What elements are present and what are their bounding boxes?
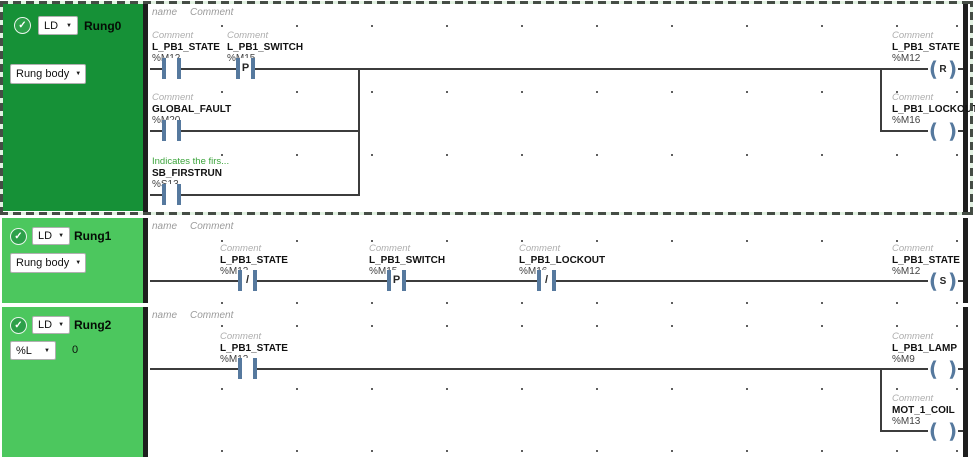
rung1-panel[interactable]: ✓ LD ▼ Rung1 Rung body ▼ bbox=[2, 218, 143, 303]
coil-set[interactable]: ( S ) bbox=[928, 269, 958, 293]
rung0-valid-check-icon: ✓ bbox=[14, 17, 31, 34]
grid-dots-row bbox=[221, 450, 899, 452]
rung-comment-field[interactable]: Comment bbox=[190, 310, 233, 321]
contact-modifier bbox=[166, 184, 177, 205]
element-name: SB_FIRSTRUN bbox=[152, 168, 282, 180]
rung2-language-label: LD bbox=[38, 319, 52, 331]
selection-border-right bbox=[970, 1, 973, 215]
rung0-title[interactable]: Rung0 bbox=[84, 19, 121, 33]
rung1-body-label: Rung body bbox=[16, 257, 69, 269]
grid-dots-row bbox=[221, 388, 899, 390]
rung0-language-label: LD bbox=[44, 20, 58, 32]
rung1-language-label: LD bbox=[38, 230, 52, 242]
rung2-label-dropdown[interactable]: %L ▼ bbox=[10, 341, 56, 360]
rung2-panel[interactable]: ✓ LD ▼ Rung2 %L ▼ 0 bbox=[2, 307, 143, 457]
coil-paren-close: ) bbox=[948, 358, 957, 380]
element-name: L_PB1_STATE bbox=[220, 255, 350, 267]
rung2-language-dropdown[interactable]: LD ▼ bbox=[32, 316, 70, 334]
rung0-panel[interactable]: ✓ LD ▼ Rung0 Rung body ▼ bbox=[2, 4, 143, 211]
rung2-name-comment-header[interactable]: name Comment bbox=[152, 310, 233, 321]
wire-segment bbox=[150, 68, 963, 70]
element-comment: Comment bbox=[519, 243, 649, 255]
contact-bar bbox=[177, 58, 181, 79]
coil-paren-open: ( bbox=[929, 120, 938, 142]
wire-segment bbox=[150, 368, 963, 370]
element-comment: Comment bbox=[892, 393, 975, 405]
rung1-body-dropdown[interactable]: Rung body ▼ bbox=[10, 253, 86, 273]
contact-bar bbox=[552, 270, 556, 291]
element-name: L_PB1_LAMP bbox=[892, 343, 975, 355]
wire-segment bbox=[150, 194, 359, 196]
contact-modifier: P bbox=[240, 58, 251, 79]
branch-wire bbox=[880, 368, 882, 432]
contact-bar bbox=[253, 270, 257, 291]
rung0-name-comment-header[interactable]: name Comment bbox=[152, 7, 233, 18]
contact-bar bbox=[253, 358, 257, 379]
element-name: L_PB1_STATE bbox=[892, 42, 975, 54]
branch-wire bbox=[880, 68, 882, 132]
wire-segment bbox=[150, 280, 963, 282]
grid-dots-row bbox=[221, 91, 899, 93]
contact-modifier bbox=[166, 120, 177, 141]
contact-bar bbox=[177, 120, 181, 141]
element-comment: Comment bbox=[220, 243, 350, 255]
coil-paren-close: ) bbox=[948, 420, 957, 442]
wire-segment bbox=[150, 130, 359, 132]
contact-modifier: P bbox=[391, 270, 402, 291]
branch-wire bbox=[358, 68, 360, 196]
chevron-down-icon: ▼ bbox=[66, 23, 72, 29]
element-comment: Comment bbox=[369, 243, 499, 255]
contact-modifier: / bbox=[541, 270, 552, 291]
chevron-down-icon: ▼ bbox=[44, 348, 50, 354]
rung2-label-prefix: %L bbox=[16, 345, 32, 357]
element-comment: Comment bbox=[892, 30, 975, 42]
contact-rising-edge[interactable]: P bbox=[387, 270, 406, 291]
contact-modifier bbox=[166, 58, 177, 79]
chevron-down-icon: ▼ bbox=[58, 233, 64, 239]
chevron-down-icon: ▼ bbox=[58, 322, 64, 328]
element-comment: Comment bbox=[152, 92, 282, 104]
contact-bar bbox=[251, 58, 255, 79]
contact-modifier: / bbox=[242, 270, 253, 291]
element-name: L_PB1_SWITCH bbox=[227, 42, 357, 54]
chevron-down-icon: ▼ bbox=[75, 71, 81, 77]
element-name: L_PB1_LOCKOUT bbox=[519, 255, 649, 267]
contact-negated[interactable]: / bbox=[238, 270, 257, 291]
contact-normal[interactable] bbox=[162, 58, 181, 79]
rung1-language-dropdown[interactable]: LD ▼ bbox=[32, 227, 70, 245]
contact-bar bbox=[402, 270, 406, 291]
coil-paren-close: ) bbox=[948, 270, 957, 292]
rung-name-field[interactable]: name bbox=[152, 7, 177, 18]
grid-dots-row bbox=[221, 154, 899, 156]
contact-normal[interactable] bbox=[162, 120, 181, 141]
coil-paren-close: ) bbox=[948, 58, 957, 80]
coil-paren-open: ( bbox=[929, 270, 938, 292]
element-name: MOT_1_COIL bbox=[892, 405, 975, 417]
rung-name-field[interactable]: name bbox=[152, 310, 177, 321]
ladder-editor: ✓ LD ▼ Rung0 Rung body ▼ name Comment Co… bbox=[0, 0, 975, 459]
chevron-down-icon: ▼ bbox=[75, 260, 81, 266]
rung-comment-field[interactable]: Comment bbox=[190, 221, 233, 232]
rung-name-field[interactable]: name bbox=[152, 221, 177, 232]
rung0-language-dropdown[interactable]: LD ▼ bbox=[38, 16, 78, 35]
element-comment: Comment bbox=[892, 243, 975, 255]
coil-normal[interactable]: ( ) bbox=[928, 419, 958, 443]
left-power-rail bbox=[143, 4, 148, 212]
left-power-rail bbox=[143, 218, 148, 303]
rung2-valid-check-icon: ✓ bbox=[10, 317, 27, 334]
contact-negated[interactable]: / bbox=[537, 270, 556, 291]
contact-modifier bbox=[242, 358, 253, 379]
rung2-label-value[interactable]: 0 bbox=[72, 344, 78, 356]
rung-comment-field[interactable]: Comment bbox=[190, 7, 233, 18]
grid-dots-row bbox=[221, 325, 899, 327]
element-comment: Comment bbox=[220, 331, 350, 343]
coil-normal[interactable]: ( ) bbox=[928, 119, 958, 143]
grid-dots-row bbox=[221, 240, 899, 242]
rung1-title[interactable]: Rung1 bbox=[74, 229, 111, 243]
element-name: L_PB1_STATE bbox=[220, 343, 350, 355]
element-comment: Comment bbox=[892, 331, 975, 343]
coil-paren-open: ( bbox=[929, 358, 938, 380]
selection-border-bottom bbox=[0, 212, 973, 215]
coil-reset[interactable]: ( R ) bbox=[928, 57, 958, 81]
element-comment: Indicates the firs... bbox=[152, 156, 282, 168]
coil-paren-close: ) bbox=[948, 120, 957, 142]
contact-rising-edge[interactable]: P bbox=[236, 58, 255, 79]
right-power-rail bbox=[963, 307, 968, 457]
selection-border-top bbox=[0, 1, 973, 4]
rung1-name-comment-header[interactable]: name Comment bbox=[152, 221, 233, 232]
rung0-body-label: Rung body bbox=[16, 68, 69, 80]
selection-border-left bbox=[0, 1, 3, 215]
coil-letter: R bbox=[938, 64, 948, 75]
contact-bar bbox=[177, 184, 181, 205]
grid-dots-row bbox=[221, 302, 899, 304]
element-name: GLOBAL_FAULT bbox=[152, 104, 282, 116]
element-comment: Comment bbox=[227, 30, 357, 42]
element-name: L_PB1_STATE bbox=[892, 255, 975, 267]
left-power-rail bbox=[143, 307, 148, 457]
grid-dots-row bbox=[221, 25, 899, 27]
coil-letter: S bbox=[938, 276, 948, 287]
rung2-title[interactable]: Rung2 bbox=[74, 318, 111, 332]
element-comment: Comment bbox=[892, 92, 975, 104]
contact-normal[interactable] bbox=[162, 184, 181, 205]
rung0-body-dropdown[interactable]: Rung body ▼ bbox=[10, 64, 86, 84]
element-name: L_PB1_SWITCH bbox=[369, 255, 499, 267]
coil-normal[interactable]: ( ) bbox=[928, 357, 958, 381]
coil-paren-open: ( bbox=[929, 58, 938, 80]
rung1-valid-check-icon: ✓ bbox=[10, 228, 27, 245]
coil-paren-open: ( bbox=[929, 420, 938, 442]
element-name: L_PB1_LOCKOUT bbox=[892, 104, 975, 116]
contact-normal[interactable] bbox=[238, 358, 257, 379]
